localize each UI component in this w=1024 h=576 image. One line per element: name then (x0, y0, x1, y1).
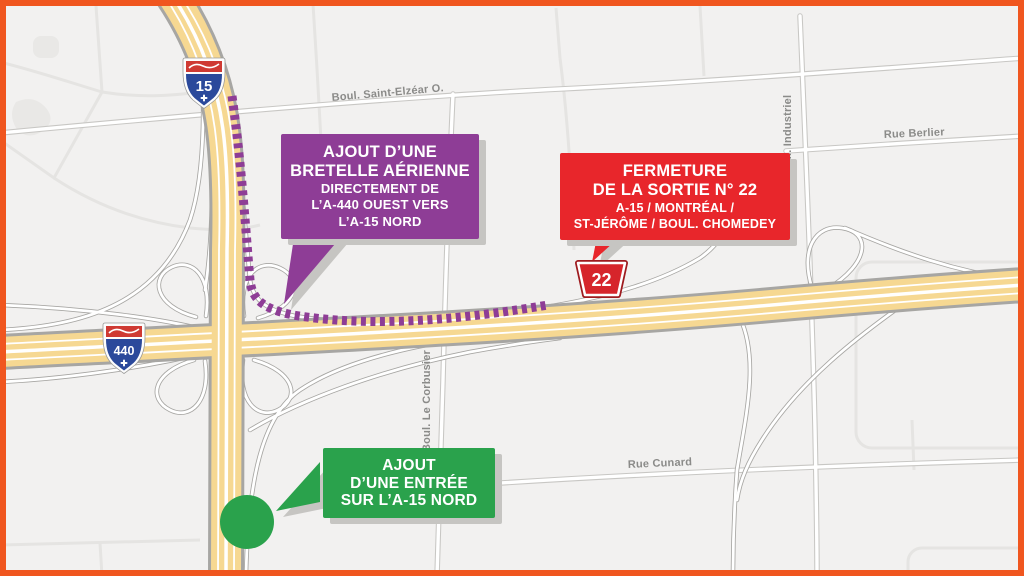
shield-a440-number: 440 (114, 344, 135, 358)
callout-title-line: BRETELLE AÉRIENNE (287, 162, 473, 181)
callout-detail-line: L’A-15 NORD (287, 214, 473, 231)
road-closure-infographic: 15 440 22 Boul. Saint-Elzéar O. Boul. In… (0, 0, 1024, 576)
callout-title-line: AJOUT (329, 457, 489, 475)
callout-title-line: DE LA SORTIE N° 22 (566, 181, 784, 200)
shield-a15-number: 15 (196, 78, 213, 95)
callout-title-line: SUR L’A-15 NORD (329, 492, 489, 510)
callout-detail-line: A-15 / MONTRÉAL / (566, 200, 784, 216)
new-entrance-marker (220, 495, 274, 549)
callout-detail-line: L’A-440 OUEST VERS (287, 197, 473, 214)
callout-detail-line: ST-JÉRÔME / BOUL. CHOMEDEY (566, 216, 784, 232)
callout-detail-line: DIRECTEMENT DE (287, 181, 473, 198)
exit-22-sign: 22 (578, 263, 625, 295)
exit-number: 22 (591, 270, 611, 290)
callout-exit-closure: FERMETURE DE LA SORTIE N° 22 A-15 / MONT… (560, 153, 790, 240)
street-label-le-corbusier: Boul. Le Corbusier (421, 349, 433, 452)
callout-title-line: D’UNE ENTRÉE (329, 475, 489, 493)
callout-title-line: AJOUT D’UNE (287, 143, 473, 162)
map-canvas: 15 440 22 Boul. Saint-Elzéar O. Boul. In… (0, 0, 1024, 576)
callout-title-line: FERMETURE (566, 162, 784, 181)
callout-new-entrance: AJOUT D’UNE ENTRÉE SUR L’A-15 NORD (323, 448, 495, 518)
callout-new-aerial-ramp: AJOUT D’UNE BRETELLE AÉRIENNE DIRECTEMEN… (281, 134, 479, 239)
